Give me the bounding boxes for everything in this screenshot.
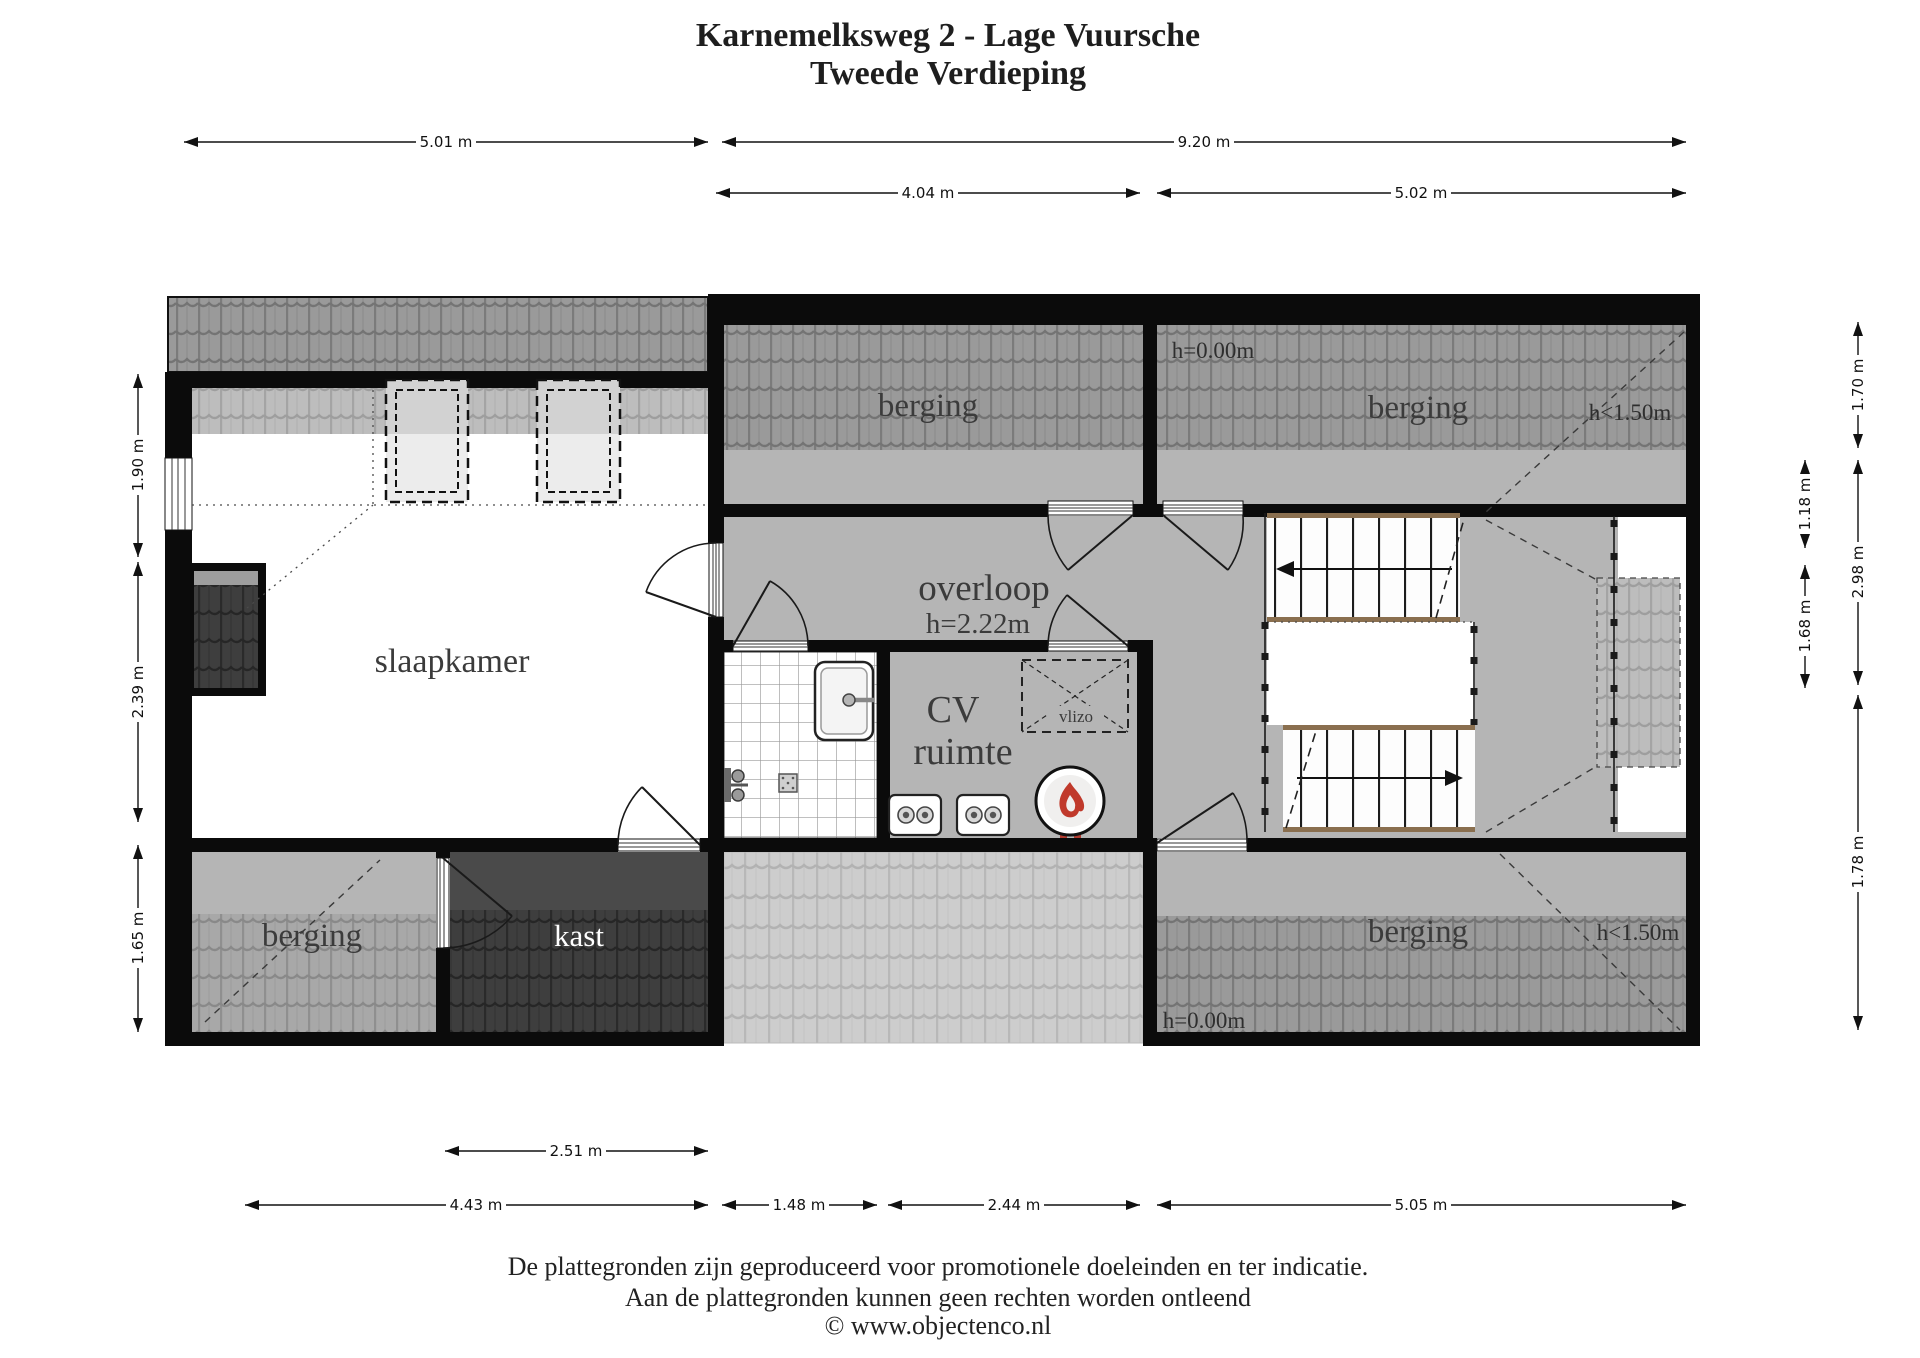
stairwell-void [1267,622,1475,725]
svg-text:2.39 m: 2.39 m [129,666,147,719]
door-sill-berging-right [1163,501,1243,515]
dim-left-1: 1.90 m [129,374,147,557]
roof-window-2 [537,380,620,502]
door-sill-berging-mid [1048,501,1133,515]
svg-text:9.20 m: 9.20 m [1178,133,1231,151]
room-label-berging-bottom-right: berging [1368,914,1468,950]
footer-copyright: © www.objectenco.nl [825,1311,1052,1340]
vlizo-label: vlizo [1059,707,1093,726]
height-marker-bottom-floor: h=0.00m [1163,1008,1246,1033]
svg-text:1.18 m: 1.18 m [1796,478,1814,531]
page-title: Karnemelksweg 2 - Lage Vuursche [696,17,1200,54]
svg-text:5.05 m: 5.05 m [1395,1196,1448,1214]
door-sill-slaapkamer [709,543,723,617]
door-sill-slaapkamer-zuid [618,839,700,851]
svg-text:1.48 m: 1.48 m [773,1196,826,1214]
floorplan-page: Karnemelksweg 2 - Lage Vuursche Tweede V… [0,0,1920,1358]
room-label-berging-bottom-left: berging [262,918,362,954]
dim-top-1: 5.01 m [184,133,708,151]
dim-bottom-1: 2.51 m [445,1142,708,1160]
dim-bottom-2: 4.43 m [245,1196,708,1214]
chimney [186,563,266,696]
door-slaapkamer-zuid [618,787,700,845]
svg-text:5.01 m: 5.01 m [420,133,473,151]
dim-bottom-5: 5.05 m [1157,1196,1686,1214]
dimension-lines-left: 1.90 m 2.39 m 1.65 m [129,374,147,1032]
svg-text:2.98 m: 2.98 m [1849,546,1867,599]
dim-top-2: 9.20 m [722,133,1686,151]
door-sill-shower [733,641,808,651]
dim-right-outer-1: 1.70 m [1849,322,1867,448]
dim-right-outer-2: 2.98 m [1849,460,1867,685]
room-label-cv-line1: CV [927,689,980,731]
room-label-berging-top-left: berging [878,388,978,424]
roof-slope-bottom-middle [724,852,1143,1043]
svg-text:1.78 m: 1.78 m [1849,836,1867,889]
stairs-upper-flight [1267,513,1464,622]
svg-text:1.68 m: 1.68 m [1796,600,1814,653]
room-label-cv-line2: ruimte [913,731,1012,773]
washing-machine-2 [957,795,1009,835]
door-sill-berging-bottom [1157,839,1247,851]
room-label-overloop: overloop [918,568,1050,609]
height-marker-top-floor: h=0.00m [1172,338,1255,363]
roof-opening-right [1597,578,1680,767]
svg-text:2.51 m: 2.51 m [550,1142,603,1160]
dim-bottom-3: 1.48 m [722,1196,877,1214]
dim-left-3: 1.65 m [129,845,147,1032]
page-subtitle: Tweede Verdieping [810,55,1086,92]
svg-text:5.02 m: 5.02 m [1395,184,1448,202]
room-label-slaapkamer: slaapkamer [375,643,530,680]
dim-top-3: 4.04 m [716,184,1140,202]
dim-left-2: 2.39 m [129,562,147,822]
footer: De plattegronden zijn geproduceerd voor … [508,1252,1369,1340]
dim-right-inner-2: 1.68 m [1796,565,1814,688]
room-berging-bottom-left-floor [192,852,436,914]
footer-line2: Aan de plattegronden kunnen geen rechten… [625,1283,1251,1312]
roof-band-top-left [168,297,708,372]
stairs-lower-flight [1283,725,1475,832]
dimension-lines-bottom: 2.51 m 4.43 m 1.48 m 2.44 m [245,1142,1686,1214]
room-berging-bottom-right-floor [1157,852,1686,916]
room-berging-top-right-floor [1157,450,1686,504]
svg-text:1.65 m: 1.65 m [129,912,147,965]
floor-drain-icon [779,774,797,792]
dim-right-outer-3: 1.78 m [1849,695,1867,1030]
height-marker-top-limit: h<1.50m [1589,400,1672,425]
dimension-lines-top: 5.01 m 9.20 m 4.04 m 5.02 m [184,133,1686,202]
floorplan-drawing: Karnemelksweg 2 - Lage Vuursche Tweede V… [0,0,1920,1358]
door-slaapkamer [646,543,716,617]
dim-top-4: 5.02 m [1157,184,1686,202]
footer-line1: De plattegronden zijn geproduceerd voor … [508,1252,1369,1281]
room-label-berging-top-right: berging [1368,390,1468,426]
sink [815,662,874,740]
room-label-kast: kast [554,918,604,953]
svg-text:1.70 m: 1.70 m [1849,359,1867,412]
room-height-overloop: h=2.22m [926,608,1031,640]
svg-text:2.44 m: 2.44 m [988,1196,1041,1214]
dim-bottom-4: 2.44 m [888,1196,1140,1214]
dimension-lines-right: 1.70 m 2.98 m 1.78 m [1796,322,1867,1030]
washing-machine-1 [889,795,941,835]
window-left [165,458,192,530]
svg-text:4.04 m: 4.04 m [902,184,955,202]
height-marker-bottom-limit: h<1.50m [1597,920,1680,945]
door-sill-kast [437,858,449,948]
room-kast-upper [450,852,708,910]
door-sill-cv [1048,641,1128,651]
room-berging-top-left-floor [724,450,1143,504]
dim-right-inner-1: 1.18 m [1796,460,1814,548]
svg-text:4.43 m: 4.43 m [450,1196,503,1214]
svg-text:1.90 m: 1.90 m [129,439,147,492]
roof-window-1 [386,380,468,502]
